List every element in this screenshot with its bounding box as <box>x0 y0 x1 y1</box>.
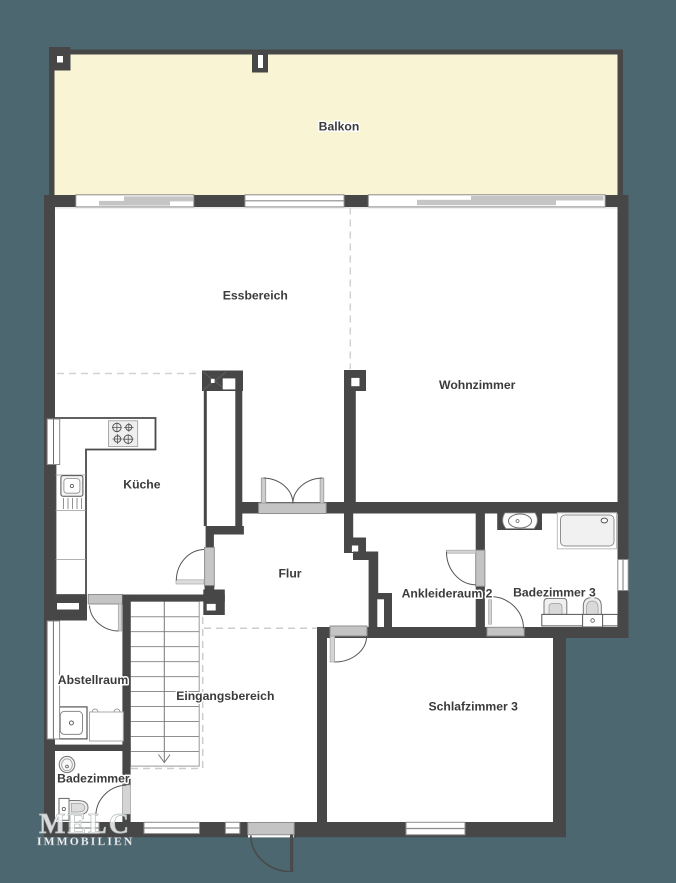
svg-text:Badezimmer: Badezimmer <box>57 772 130 786</box>
svg-text:Küche: Küche <box>123 478 160 492</box>
svg-text:Schlafzimmer 3: Schlafzimmer 3 <box>428 700 518 714</box>
svg-text:IMMOBILIEN: IMMOBILIEN <box>37 836 134 848</box>
svg-text:Abstellraum: Abstellraum <box>58 673 129 687</box>
svg-text:Essbereich: Essbereich <box>223 289 288 303</box>
svg-text:Eingangsbereich: Eingangsbereich <box>176 689 274 703</box>
svg-text:Ankleideraum 2: Ankleideraum 2 <box>402 587 493 601</box>
svg-text:Wohnzimmer: Wohnzimmer <box>439 378 516 392</box>
svg-text:Balkon: Balkon <box>319 120 360 134</box>
svg-text:Badezimmer 3: Badezimmer 3 <box>513 586 596 600</box>
svg-text:Flur: Flur <box>278 567 301 581</box>
